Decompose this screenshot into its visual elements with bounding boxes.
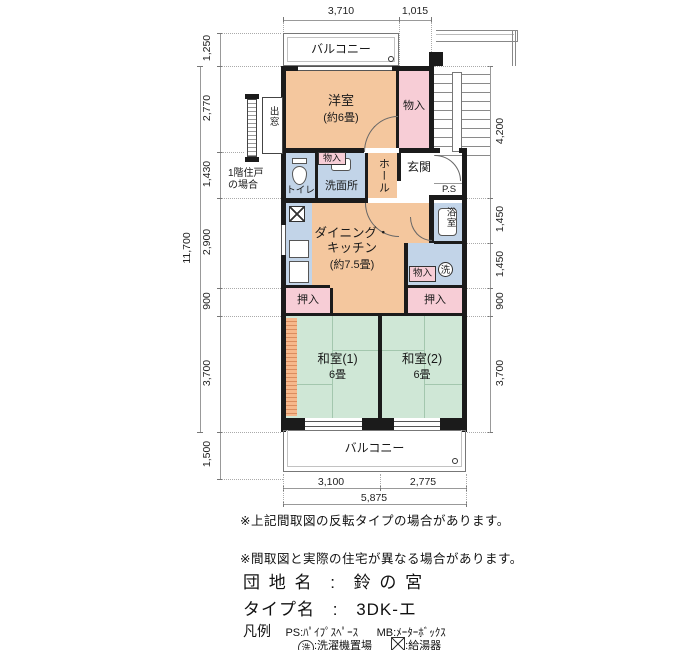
ps-label: P.S [434,184,464,196]
neighbor-wall-line [512,30,516,66]
dim-line-bottom-total [283,504,466,505]
type-value: 3DK-エ [356,600,417,619]
ext-line [222,152,244,153]
wall-segment [397,153,401,181]
balcony-top-label: バルコニー [283,42,399,57]
dim-left-1: 1,250 [201,18,213,78]
ext-line [222,66,281,67]
wall-segment [286,285,330,288]
bay-window-label: 出窓 [267,106,279,127]
dim-line-bottom [283,488,466,489]
wall-segment [440,418,467,430]
dim-bottom-2: 2,775 [393,476,453,488]
note-actual-differs: ※間取図と実際の住宅が異なる場合があります。 [240,548,523,567]
wall-segment [399,148,434,153]
floor-plan-page: バルコニー 出窓 [0,0,700,650]
dim-left-3: 1,430 [201,144,213,204]
dim-top-1: 3,710 [311,5,371,17]
ext-line [399,22,400,66]
legend-laundry-icon: 洗 [298,640,314,650]
neighbor-balcony-outline [436,30,518,42]
legend-laundry-text: :洗濯機置場 [314,640,372,650]
wall-segment [362,418,394,430]
type-label: タイプ名 [243,600,315,619]
ext-line [467,288,490,289]
tatami-line [297,384,332,385]
toilet-tank-icon [292,158,307,164]
danchi-label: 団 地 名 [243,573,313,592]
laundry-symbol-icon: 洗 [438,262,453,277]
dk-label: ダイニング・ キッチン (約7.5畳) [300,226,404,272]
legend-row-2: 洗:洗濯機置場 :給湯器 [298,637,441,650]
neighbor-balcony-line [436,34,514,35]
dim-left-5: 900 [201,271,213,331]
ext-line [222,288,281,289]
balcony-drain-icon [452,458,458,464]
dim-line-top [283,20,431,21]
monoire-mid-label: 物入 [318,153,346,164]
dim-left-6: 3,700 [201,343,213,403]
tatami-line [424,384,462,385]
door-arc-genkan [435,155,461,181]
dim-line-left [220,33,221,479]
balcony-bottom-label: バルコニー [283,441,466,456]
danchi-sep: : [330,573,337,592]
stair-rail [452,72,462,152]
note-reverse-type: ※上記間取図の反転タイプの場合があります。 [240,510,510,529]
wall-segment [434,241,462,244]
dim-bottom-1: 3,100 [301,476,361,488]
wall-segment [281,418,305,430]
yoshitsu-label: 洋室 (約6畳) [286,93,396,125]
window [305,421,362,427]
toilet-label: トイレ [286,185,315,197]
wall-segment [429,52,443,66]
ext-line [467,432,490,433]
oshiire-left-label: 押入 [286,294,330,307]
washitsu1-window-strip [286,318,297,416]
dim-right-5: 3,700 [494,343,506,403]
first-floor-note-line2: の場合 [228,180,258,191]
dim-left-7: 1,500 [201,424,213,484]
wall-segment [429,71,434,153]
window [394,421,440,427]
wall-segment [330,288,333,316]
wall-segment [286,313,462,316]
ext-line [222,33,281,34]
wall-segment [245,94,259,99]
washitsu2-label: 和室(2) 6畳 [382,352,462,383]
window [281,225,286,255]
oshiire-right-label: 押入 [408,294,462,307]
wall-segment [408,285,462,288]
ext-line [466,474,467,504]
ext-line [283,474,284,504]
monoire-right-label: 物入 [409,268,436,280]
water-heater-icon [289,206,305,222]
ext-line [467,316,490,317]
ext-line [283,22,284,32]
legend-water-heater-icon [391,637,405,650]
hall-label: ホール [376,158,389,194]
wall-segment [429,195,467,200]
dim-right-4: 900 [494,271,506,331]
ext-line [222,479,283,480]
ext-line [467,198,490,199]
legend-water-heater-text: :給湯器 [405,640,441,650]
monoire-top-label: 物入 [399,100,429,113]
legend-title: 凡例 [243,623,271,639]
first-floor-note-line1: 1階住戸 [228,168,264,179]
genkan-label: 玄関 [402,160,436,175]
dim-right-1: 4,200 [494,101,506,161]
window [298,66,392,71]
ext-line [222,432,281,433]
tatami-line [332,350,378,351]
type-name-row: タイプ名 : 3DK-エ [243,595,417,620]
dim-bottom-total: 5,875 [344,492,404,504]
dim-line-right [490,66,491,432]
first-floor-hatch [247,99,257,157]
danchi-value: 鈴 の 宮 [354,573,424,592]
ext-line [467,243,490,244]
ext-line [434,66,490,67]
ext-line [380,474,381,488]
danchi-name-row: 団 地 名 : 鈴 の 宮 [243,568,424,593]
dim-left-total: 11,700 [181,218,193,278]
dim-left-2: 2,770 [201,78,213,138]
senmenjo-label: 洗面所 [318,180,365,193]
wall-segment [286,198,368,203]
washitsu1-label: 和室(1) 6畳 [297,352,378,383]
wall-segment [365,153,368,198]
dim-left-4: 2,900 [201,212,213,272]
type-sep: : [333,600,339,619]
bath-label: 浴室 [444,207,456,228]
ext-line [222,198,281,199]
balcony-drain-icon [388,56,394,62]
dim-top-2: 1,015 [385,5,445,17]
first-floor-note: 1階住戸 の場合 [228,168,274,192]
stairs [434,66,490,158]
wall-segment [434,148,440,153]
ext-line [431,22,432,52]
wall-segment [245,157,259,162]
tatami-line [382,350,424,351]
ext-line [222,316,281,317]
